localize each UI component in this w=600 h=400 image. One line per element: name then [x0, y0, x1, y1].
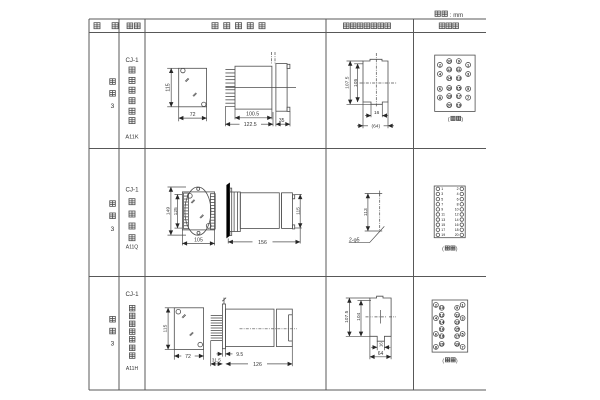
svg-text:6: 6 — [435, 332, 437, 336]
svg-text:17: 17 — [441, 228, 445, 232]
svg-text:): ) — [456, 247, 458, 253]
svg-text:16: 16 — [374, 110, 380, 116]
svg-text:(64): (64) — [371, 124, 380, 130]
svg-text:31.5: 31.5 — [212, 358, 222, 363]
svg-text:5: 5 — [441, 197, 443, 201]
svg-text:7: 7 — [441, 202, 443, 206]
svg-text:17: 17 — [457, 93, 461, 98]
svg-text:9.5: 9.5 — [236, 352, 243, 358]
svg-text:12: 12 — [455, 213, 459, 217]
svg-text:35: 35 — [279, 118, 285, 124]
svg-text:105: 105 — [194, 238, 203, 244]
svg-text:3: 3 — [111, 226, 115, 233]
svg-text:20: 20 — [440, 342, 444, 346]
svg-text:20: 20 — [447, 102, 451, 107]
svg-text:8: 8 — [457, 202, 459, 206]
svg-text:11: 11 — [441, 213, 445, 217]
svg-text:149: 149 — [165, 207, 171, 215]
svg-text:115: 115 — [296, 207, 302, 215]
svg-text:CJ-1: CJ-1 — [125, 57, 139, 64]
svg-text:14: 14 — [455, 218, 459, 222]
svg-text:7: 7 — [462, 345, 464, 349]
svg-text:15: 15 — [455, 327, 459, 331]
svg-text:100.5: 100.5 — [246, 112, 259, 118]
svg-text:3: 3 — [111, 340, 115, 347]
svg-text:A11H: A11H — [126, 366, 139, 372]
svg-text:A11Q: A11Q — [126, 245, 139, 251]
svg-text:10: 10 — [440, 306, 444, 310]
svg-text:107.5: 107.5 — [345, 76, 351, 89]
svg-text:107.5: 107.5 — [344, 310, 350, 323]
svg-text:115: 115 — [166, 83, 172, 91]
svg-text:3: 3 — [441, 192, 443, 196]
svg-text:3: 3 — [462, 316, 464, 320]
svg-text:9: 9 — [441, 208, 443, 212]
svg-text:1: 1 — [441, 187, 443, 191]
svg-text:105: 105 — [353, 79, 359, 87]
svg-text:1: 1 — [462, 303, 464, 307]
svg-text:8: 8 — [435, 345, 437, 349]
svg-text:2: 2 — [457, 187, 459, 191]
svg-text:15: 15 — [441, 223, 445, 227]
svg-text:4: 4 — [457, 192, 459, 196]
svg-text:(: ( — [442, 358, 444, 364]
svg-text::: : — [450, 13, 452, 19]
svg-text:72: 72 — [185, 354, 191, 360]
svg-text:5: 5 — [462, 332, 464, 336]
svg-text:CJ-1: CJ-1 — [125, 291, 139, 298]
svg-text:(: ( — [442, 247, 444, 253]
svg-text:CJ-1: CJ-1 — [125, 186, 139, 193]
svg-text:13: 13 — [455, 320, 459, 324]
svg-text:16: 16 — [455, 223, 459, 227]
svg-text:122.5: 122.5 — [244, 122, 257, 128]
svg-text:2: 2 — [435, 303, 437, 307]
svg-text:(: ( — [448, 117, 450, 123]
svg-text:mm: mm — [453, 13, 463, 19]
svg-text:12: 12 — [440, 313, 444, 317]
svg-text:126: 126 — [253, 362, 262, 368]
svg-text:19: 19 — [441, 233, 445, 237]
svg-text:20: 20 — [455, 233, 459, 237]
svg-text:6: 6 — [457, 197, 459, 201]
svg-text:19: 19 — [455, 342, 459, 346]
svg-text:3: 3 — [111, 103, 115, 110]
svg-text:125: 125 — [173, 207, 179, 215]
svg-text:): ) — [461, 117, 463, 123]
svg-text:17: 17 — [455, 335, 459, 339]
svg-text:113: 113 — [363, 208, 369, 216]
svg-text:): ) — [456, 358, 458, 364]
svg-text:16: 16 — [440, 327, 444, 331]
svg-text:10: 10 — [455, 208, 459, 212]
svg-text:104: 104 — [356, 312, 362, 320]
svg-text:11: 11 — [455, 313, 459, 317]
svg-text:13: 13 — [441, 218, 445, 222]
svg-text:A11K: A11K — [125, 135, 139, 141]
svg-text:16: 16 — [378, 342, 383, 347]
svg-text:115: 115 — [163, 324, 169, 332]
svg-text:72: 72 — [190, 112, 196, 118]
svg-text:9: 9 — [456, 306, 458, 310]
svg-text:156: 156 — [258, 240, 267, 246]
svg-text:64: 64 — [378, 351, 384, 357]
svg-text:10: 10 — [447, 58, 451, 63]
svg-text:18: 18 — [440, 335, 444, 339]
svg-text:7: 7 — [467, 95, 469, 100]
svg-text:18: 18 — [455, 228, 459, 232]
